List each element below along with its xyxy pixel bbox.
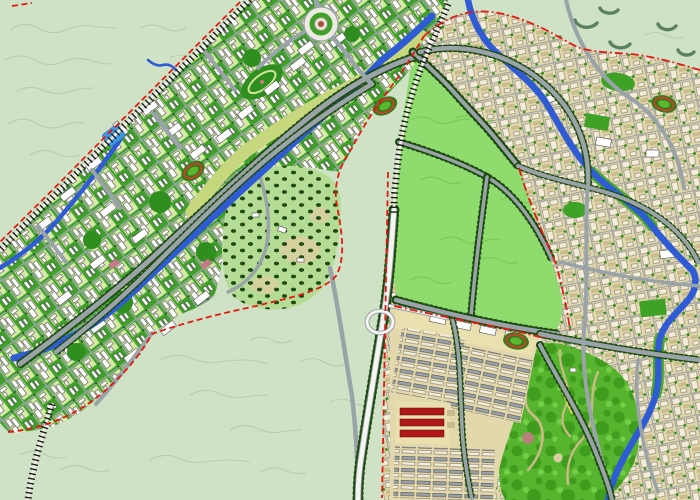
civic-building	[646, 150, 659, 157]
roundabout-plaza	[304, 7, 338, 41]
green-block	[563, 202, 587, 218]
garden-plaza	[554, 454, 563, 463]
map-canvas	[0, 0, 700, 500]
row-housing	[393, 446, 495, 500]
flower-garden	[522, 432, 534, 444]
villa-building	[252, 213, 259, 217]
villa-building	[297, 258, 304, 262]
master-plan-map	[0, 0, 700, 500]
park-pavilion	[570, 368, 576, 372]
green-block	[639, 299, 667, 318]
